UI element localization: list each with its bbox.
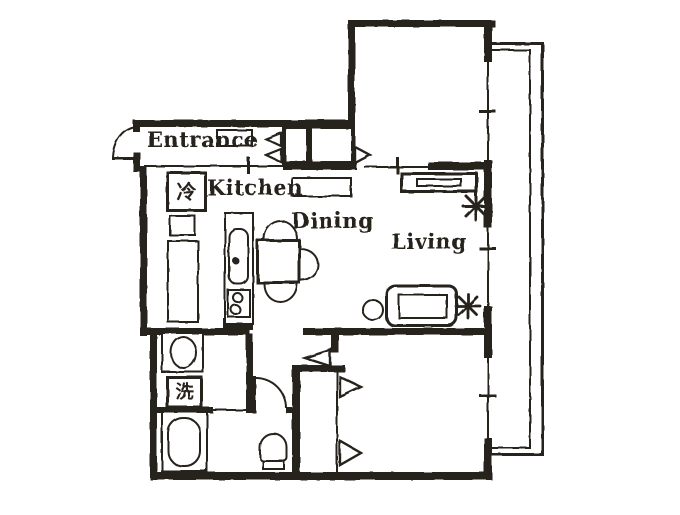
room-label-kitchen: Kitchen [207,175,303,200]
washing-machine-label: 洗 [176,384,194,402]
entrance-step-line [144,165,284,167]
chair-bottom [263,284,298,303]
plant-icon-1 [460,190,492,222]
room-label-living: Living [391,229,467,254]
balcony-inner [490,49,531,449]
window-right-bedroom [487,354,489,442]
refrigerator: 冷 [166,171,207,212]
refrigerator-label: 冷 [177,182,197,202]
wall-toproom-left [348,20,355,133]
window-toproom-tick [396,157,399,174]
closet-door-icon-2 [339,440,363,466]
faucet-icon [232,257,239,264]
closet-door-line [336,372,338,472]
side-table [362,299,384,321]
toilet-bowl [259,433,288,462]
washing-machine: 洗 [166,376,203,409]
bathtub [167,417,201,467]
room-label-entrance: Entrance [147,127,258,152]
wall-left-mid [140,166,147,336]
tv-board-inner [416,178,462,187]
folding-door-icon [265,132,283,164]
kitchen-cabinet [169,215,196,236]
front-door-base [112,157,140,160]
bedroom-door-icon [303,349,332,367]
bath-door-line [212,409,248,411]
sofa-seat [398,294,448,319]
toilet-door-arc-icon [256,377,287,408]
wall-toproom-bottom [428,162,486,170]
window-right-living [487,224,489,310]
wall-bottom [150,472,491,480]
kitchen-counter-left [167,240,199,323]
kitchen-sink [228,228,249,285]
stove-burner-1 [232,292,243,303]
entrance-closet [282,125,355,165]
dining-table [256,239,301,284]
entrance-closet-divider [306,127,312,163]
wall-left-low [150,330,157,480]
wash-basin [170,336,197,369]
floor-plan: 冷 洗 Entrance Kitchen Dining Living [0,0,680,515]
closet-door-icon-1 [339,376,363,398]
wall-bedroom-door [331,334,339,353]
toilet-base [262,460,285,470]
entrance-step-tick [247,157,250,174]
front-door-arc-icon [112,126,138,159]
wall-toproom-top [348,20,495,27]
room-label-dining: Dining [291,208,373,233]
wall-closet-vertical [292,365,300,477]
stove-burner-2 [230,304,241,315]
plant-icon-2 [454,292,482,320]
toproom-door-icon [354,146,372,164]
chair-right [301,248,319,281]
